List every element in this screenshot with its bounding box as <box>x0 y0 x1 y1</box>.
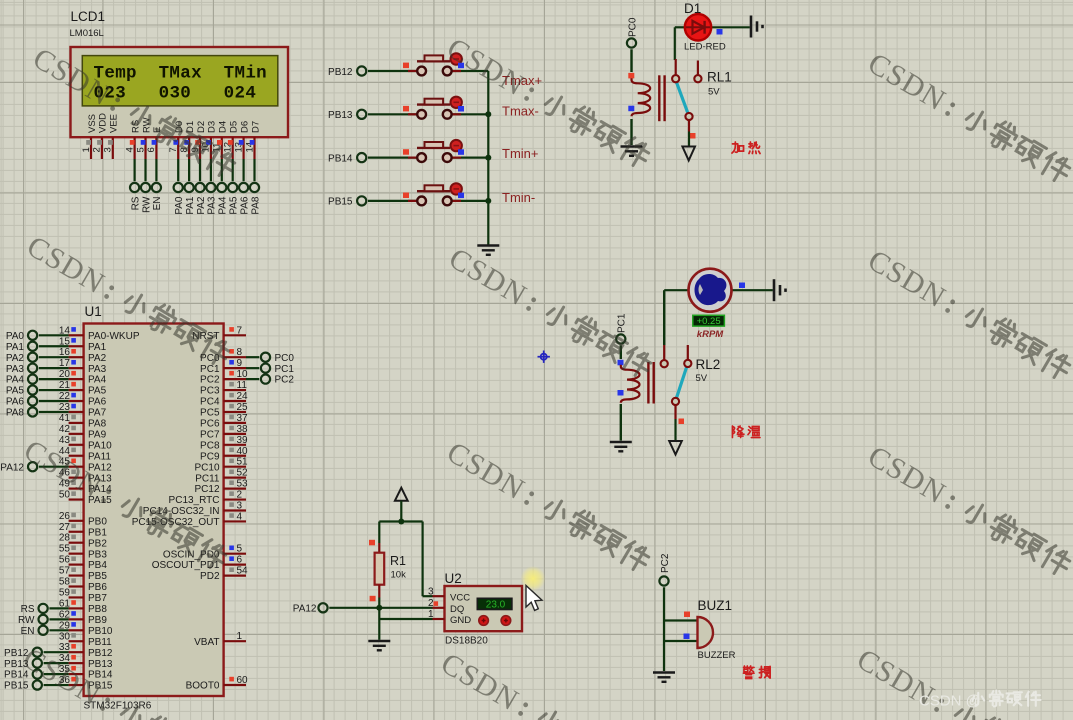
svg-text:2: 2 <box>237 490 243 501</box>
svg-text:24: 24 <box>237 391 249 402</box>
svg-text:PA4: PA4 <box>218 196 229 215</box>
svg-text:PA5: PA5 <box>6 386 25 397</box>
svg-text:RS: RS <box>21 604 35 615</box>
svg-text:VSS: VSS <box>87 114 98 133</box>
svg-text:25: 25 <box>237 402 249 413</box>
svg-text:PA9: PA9 <box>88 429 107 440</box>
svg-text:60: 60 <box>237 675 249 686</box>
svg-text:PB6: PB6 <box>88 582 107 593</box>
svg-text:52: 52 <box>237 468 249 479</box>
svg-text:D3: D3 <box>207 121 218 133</box>
svg-text:PC11: PC11 <box>195 473 220 484</box>
svg-text:PA2: PA2 <box>6 353 25 364</box>
svg-text:PA0-WKUP: PA0-WKUP <box>88 331 140 342</box>
svg-text:27: 27 <box>59 522 71 533</box>
svg-text:LCD1: LCD1 <box>71 9 106 24</box>
svg-text:kRPM: kRPM <box>697 329 724 340</box>
svg-text:D6: D6 <box>239 121 250 133</box>
svg-text:28: 28 <box>59 533 71 544</box>
svg-text:PB8: PB8 <box>88 604 107 615</box>
svg-text:1: 1 <box>237 631 243 642</box>
svg-text:9: 9 <box>237 358 243 369</box>
svg-text:8: 8 <box>237 347 243 358</box>
svg-text:DQ: DQ <box>450 604 464 615</box>
svg-text:U1: U1 <box>85 304 102 319</box>
svg-text:DS18B20: DS18B20 <box>445 636 488 647</box>
svg-text:30: 30 <box>59 631 71 642</box>
svg-text:D5: D5 <box>229 121 240 133</box>
svg-text:PB3: PB3 <box>88 549 107 560</box>
svg-text:PA4: PA4 <box>88 375 107 386</box>
svg-text:PA5: PA5 <box>229 196 240 215</box>
svg-text:D2: D2 <box>196 121 207 133</box>
svg-text:GND: GND <box>450 615 471 626</box>
svg-text:EN: EN <box>152 197 163 211</box>
svg-text:PD2: PD2 <box>200 571 220 582</box>
svg-text:PB5: PB5 <box>88 571 107 582</box>
svg-text:PC15-OSC32_OUT: PC15-OSC32_OUT <box>132 517 220 528</box>
svg-text:PC12: PC12 <box>194 484 219 495</box>
svg-text:1: 1 <box>428 609 434 620</box>
svg-text:VCC: VCC <box>450 592 470 603</box>
svg-text:41: 41 <box>59 413 71 424</box>
svg-text:PB9: PB9 <box>88 615 107 626</box>
svg-text:PB4: PB4 <box>88 560 107 571</box>
svg-text:R1: R1 <box>390 554 406 568</box>
svg-text:PC2: PC2 <box>275 375 295 386</box>
svg-text:PC1: PC1 <box>617 313 628 333</box>
svg-text:5V: 5V <box>696 373 708 384</box>
svg-text:PC5: PC5 <box>200 408 220 419</box>
svg-text:5: 5 <box>237 544 243 555</box>
svg-text:PA8: PA8 <box>6 408 25 419</box>
svg-text:PA8: PA8 <box>250 196 261 215</box>
svg-text:5V: 5V <box>708 87 720 98</box>
svg-text:58: 58 <box>59 577 71 588</box>
svg-text:PA8: PA8 <box>88 419 107 430</box>
svg-text:U2: U2 <box>445 571 462 586</box>
svg-text:54: 54 <box>237 566 249 577</box>
svg-text:PA1: PA1 <box>185 196 196 215</box>
svg-text:26: 26 <box>59 511 71 522</box>
svg-text:5: 5 <box>135 147 146 152</box>
svg-text:PC8: PC8 <box>200 440 220 451</box>
svg-text:PA2: PA2 <box>88 353 107 364</box>
svg-text:PA10: PA10 <box>88 440 112 451</box>
svg-text:51: 51 <box>237 457 249 468</box>
svg-text:PB11: PB11 <box>88 637 112 648</box>
svg-text:BUZZER: BUZZER <box>698 650 736 661</box>
svg-text:23.0: 23.0 <box>486 600 506 611</box>
svg-text:PA3: PA3 <box>6 364 25 375</box>
svg-text:40: 40 <box>237 446 249 457</box>
svg-text:PC10: PC10 <box>194 462 219 473</box>
svg-text:PA0: PA0 <box>6 331 25 342</box>
svg-text:PA6: PA6 <box>88 397 107 408</box>
svg-text:PA3: PA3 <box>88 364 107 375</box>
svg-text:Tmin+: Tmin+ <box>502 146 538 161</box>
svg-text:PA0: PA0 <box>174 196 185 215</box>
svg-text:D7: D7 <box>250 121 261 133</box>
svg-text:PA5: PA5 <box>88 386 107 397</box>
svg-text:PC1: PC1 <box>200 364 220 375</box>
svg-text:PB1: PB1 <box>88 527 107 538</box>
svg-text:7: 7 <box>237 325 243 336</box>
svg-text:Temp TMax TMin: Temp TMax TMin <box>94 64 267 84</box>
svg-text:PC3: PC3 <box>200 386 220 397</box>
svg-text:PA6: PA6 <box>239 196 250 215</box>
svg-text:10k: 10k <box>391 570 407 581</box>
svg-text:RL1: RL1 <box>707 70 732 85</box>
svg-text:6: 6 <box>146 147 157 152</box>
svg-text:39: 39 <box>237 435 249 446</box>
svg-text:PA12: PA12 <box>0 462 24 473</box>
svg-text:53: 53 <box>237 479 249 490</box>
svg-text:PB12: PB12 <box>88 648 113 659</box>
svg-text:PA1: PA1 <box>88 342 107 353</box>
svg-text:4: 4 <box>237 511 243 522</box>
svg-text:PB13: PB13 <box>328 110 353 121</box>
svg-text:PB0: PB0 <box>88 516 107 527</box>
svg-text:PB12: PB12 <box>328 67 353 78</box>
svg-text:3: 3 <box>237 501 243 512</box>
svg-text:BUZ1: BUZ1 <box>698 598 733 613</box>
svg-text:PB14: PB14 <box>328 153 353 164</box>
svg-text:VBAT: VBAT <box>194 637 219 648</box>
svg-text:11: 11 <box>237 380 248 391</box>
svg-text:Tmax-: Tmax- <box>502 104 539 119</box>
svg-text:PA11: PA11 <box>88 451 111 462</box>
svg-text:38: 38 <box>237 424 249 435</box>
svg-text:PB15: PB15 <box>4 681 29 692</box>
svg-text:PC6: PC6 <box>200 419 220 430</box>
svg-text:37: 37 <box>237 413 249 424</box>
svg-text:56: 56 <box>59 555 71 566</box>
svg-text:RW: RW <box>141 196 152 213</box>
svg-text:PA2: PA2 <box>196 196 207 215</box>
svg-text:PB15: PB15 <box>328 197 353 208</box>
svg-text:RW: RW <box>18 615 35 626</box>
svg-text:PC7: PC7 <box>200 429 220 440</box>
svg-text:LM016L: LM016L <box>70 28 104 39</box>
svg-text:PC9: PC9 <box>200 451 220 462</box>
svg-text:RL2: RL2 <box>696 357 721 372</box>
svg-text:PB2: PB2 <box>88 538 107 549</box>
svg-text:LED-RED: LED-RED <box>684 42 726 53</box>
svg-text:PB13: PB13 <box>88 659 113 670</box>
svg-text:43: 43 <box>59 435 71 446</box>
svg-text:3: 3 <box>428 586 434 597</box>
svg-text:EN: EN <box>21 626 35 637</box>
svg-text:4: 4 <box>124 147 135 152</box>
svg-text:PA1: PA1 <box>6 342 25 353</box>
svg-text:6: 6 <box>237 555 243 566</box>
svg-text:PA7: PA7 <box>88 408 107 419</box>
svg-text:PC4: PC4 <box>200 397 220 408</box>
svg-text:Tmin-: Tmin- <box>502 190 535 205</box>
svg-text:PC0: PC0 <box>628 17 639 37</box>
svg-text:PB10: PB10 <box>88 626 113 637</box>
svg-text:55: 55 <box>59 544 71 555</box>
svg-text:PC13_RTC: PC13_RTC <box>169 495 220 506</box>
svg-text:PB7: PB7 <box>88 593 107 604</box>
svg-text:PA4: PA4 <box>6 375 25 386</box>
svg-text:VDD: VDD <box>98 113 109 133</box>
svg-text:VEE: VEE <box>109 114 120 133</box>
svg-text:+0.25: +0.25 <box>697 316 721 327</box>
svg-text:2: 2 <box>428 598 434 609</box>
svg-text:D4: D4 <box>218 121 229 133</box>
svg-text:PC2: PC2 <box>660 553 671 573</box>
svg-text:PA12: PA12 <box>293 603 317 614</box>
svg-text:1: 1 <box>81 147 92 152</box>
svg-text:3: 3 <box>103 147 114 152</box>
svg-text:59: 59 <box>59 587 71 598</box>
svg-text:RS: RS <box>130 196 141 210</box>
svg-text:PC0: PC0 <box>275 353 295 364</box>
svg-text:BOOT0: BOOT0 <box>186 681 220 692</box>
svg-text:57: 57 <box>59 566 71 577</box>
svg-text:PA3: PA3 <box>207 196 218 215</box>
svg-text:PC1: PC1 <box>275 364 295 375</box>
svg-text:2: 2 <box>92 147 103 152</box>
svg-text:42: 42 <box>59 424 71 435</box>
svg-text:PA6: PA6 <box>6 397 25 408</box>
svg-text:7: 7 <box>168 147 179 152</box>
svg-text:PC2: PC2 <box>200 375 220 386</box>
